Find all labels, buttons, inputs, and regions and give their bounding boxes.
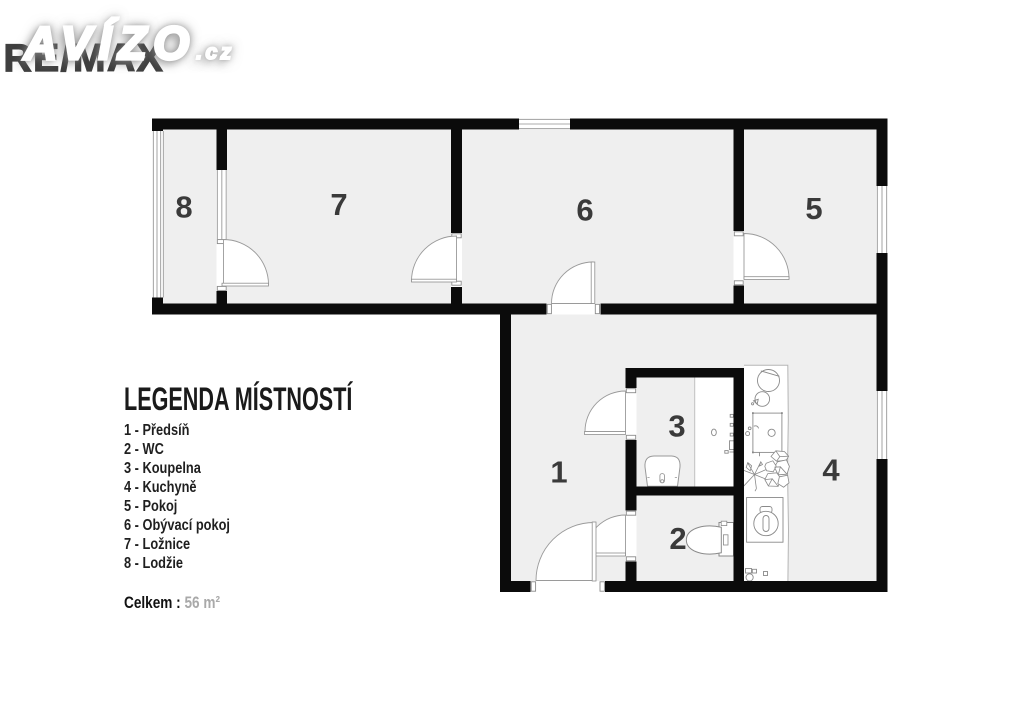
svg-text:6: 6 — [576, 193, 593, 228]
svg-text:4: 4 — [822, 453, 840, 488]
svg-text:1: 1 — [550, 455, 567, 490]
svg-text:8: 8 — [175, 190, 192, 225]
svg-text:5: 5 — [805, 191, 822, 226]
svg-text:3: 3 — [668, 409, 685, 444]
svg-text:7: 7 — [330, 187, 347, 222]
svg-text:2: 2 — [669, 521, 686, 556]
